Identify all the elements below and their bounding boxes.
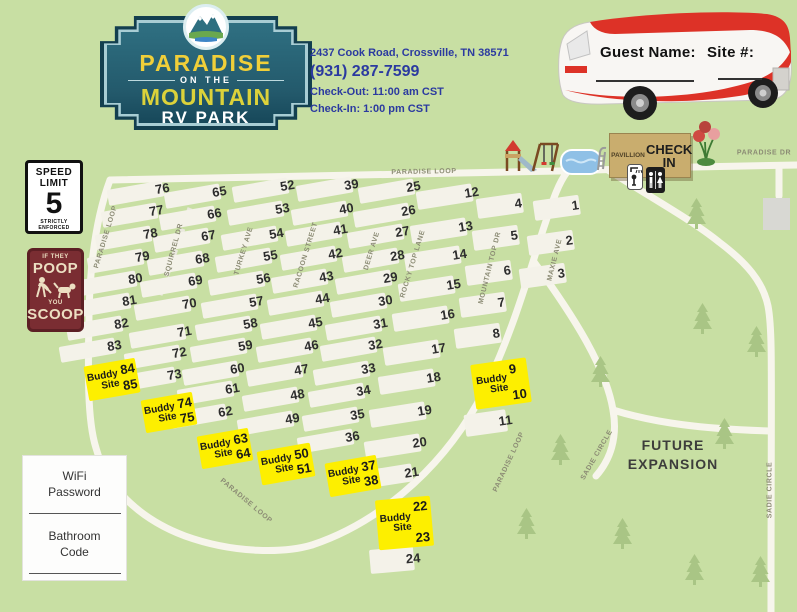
site-number: 68 <box>194 250 211 267</box>
site-number: 45 <box>307 314 324 331</box>
site-number: 81 <box>121 292 138 309</box>
site-number: 15 <box>445 276 462 293</box>
site-19: 19 <box>369 399 445 428</box>
site-number: 14 <box>451 246 468 263</box>
future-expansion-label: FUTURE EXPANSION <box>612 436 734 474</box>
site-number: 35 <box>349 406 366 423</box>
site-number: 31 <box>372 315 389 332</box>
buddy-site-label: BuddySite <box>86 368 120 393</box>
buddy-site-37-38: BuddySite3738 <box>324 455 381 498</box>
site-number: 56 <box>255 270 272 287</box>
site-number: 55 <box>262 247 279 264</box>
site-number: 30 <box>377 292 394 309</box>
buddy-site-label: BuddySite <box>379 512 412 535</box>
site-number: 61 <box>224 380 241 397</box>
road-label-sadie-circle: SADIE CIRCLE <box>767 462 774 519</box>
site-number: 77 <box>148 202 165 219</box>
site-8: 8 <box>454 320 520 349</box>
site-1: 1 <box>533 192 599 221</box>
site-number: 53 <box>274 200 291 217</box>
guest-name-blank-line <box>596 80 694 82</box>
rv-site-number-label: Site #: <box>707 44 754 61</box>
road-label-sadie-circle: SADIE CIRCLE <box>580 429 614 482</box>
site-number: 79 <box>134 248 151 265</box>
road-label-paradise-loop: PARADISE LOOP <box>492 431 526 493</box>
buddy-site-label: BuddySite <box>260 453 294 478</box>
road-label-paradise-loop: PARADISE LOOP <box>391 168 456 176</box>
rv-park-map: 1234567811121314151617181920212425262728… <box>0 0 797 612</box>
logo-line-paradise: PARADISE <box>100 50 312 77</box>
site-number: 34 <box>355 382 372 399</box>
site-number: 52 <box>279 177 296 194</box>
buddy-site-74-75: BuddySite7475 <box>141 392 198 434</box>
flowers-icon <box>690 118 722 166</box>
site-number: 44 <box>314 290 331 307</box>
site-number: 65 <box>211 183 228 200</box>
site-7: 7 <box>459 289 525 318</box>
logo-line-rvpark: RV PARK <box>100 108 312 128</box>
site-number: 32 <box>367 336 384 353</box>
pool-icon <box>560 142 608 176</box>
site-18: 18 <box>378 366 454 395</box>
site-number: 73 <box>166 366 183 383</box>
wifi-password-blank-line <box>29 513 121 514</box>
site-number: 71 <box>176 323 193 340</box>
site-number: 18 <box>425 369 442 386</box>
pet-waste-sign: IF THEY POOP YOU SCOOP <box>27 248 84 332</box>
site-number: 72 <box>171 344 188 361</box>
site-number: 27 <box>394 223 411 240</box>
site-number: 69 <box>187 272 204 289</box>
logo-line-mountain: MOUNTAIN <box>100 84 312 111</box>
future-word: FUTURE <box>612 436 734 455</box>
site-number: 59 <box>237 337 254 354</box>
site-11: 11 <box>463 407 525 437</box>
site-number: 40 <box>338 200 355 217</box>
pavillion-label: PAVILLION <box>610 152 646 159</box>
buddy-site-numbers: 7475 <box>176 394 195 425</box>
checkout-text: Check-Out: 11:00 am CST <box>310 86 509 98</box>
address-text: 2437 Cook Road, Crossville, TN 38571 <box>310 47 509 59</box>
site-number: 78 <box>142 225 159 242</box>
site-number: 19 <box>416 402 433 419</box>
shower-icon <box>627 164 643 190</box>
rv-guest-name-label: Guest Name: <box>600 44 696 61</box>
site-16: 16 <box>392 303 468 332</box>
site-number: 47 <box>293 361 310 378</box>
park-logo-sign: PARADISE ON THE MOUNTAIN RV PARK <box>100 4 312 130</box>
speed-word: SPEED <box>36 167 72 178</box>
buddy-site-63-64: BuddySite6364 <box>197 428 254 470</box>
site-number: 66 <box>206 205 223 222</box>
buddy-site-numbers: 3738 <box>360 457 379 489</box>
buddy-site-22-23: BuddySite2223 <box>375 496 434 551</box>
site-number: 12 <box>463 184 480 201</box>
site-number: 57 <box>248 293 265 310</box>
site-number: 58 <box>242 315 259 332</box>
site-number: 25 <box>405 178 422 195</box>
road-label-paradise-dr: PARADISE DR <box>737 150 791 157</box>
speed-number: 5 <box>46 189 63 219</box>
buddy-site-numbers: 6364 <box>232 430 251 461</box>
checkin-text: Check-In: 1:00 pm CST <box>310 103 509 115</box>
buddy-site-label: BuddySite <box>476 373 510 397</box>
phone-text: (931) 287-7599 <box>310 63 509 81</box>
site-number: 83 <box>106 337 123 354</box>
site-number: 39 <box>343 176 360 193</box>
site-number: 43 <box>318 268 335 285</box>
site-number: 41 <box>332 221 349 238</box>
site-number: 33 <box>360 360 377 377</box>
rv-illustration <box>545 0 795 130</box>
scoop-text: SCOOP <box>27 307 84 322</box>
speed-limit-sign: SPEED LIMIT 5 STRICTLY ENFORCED <box>25 160 83 234</box>
buddy-site-numbers: 910 <box>508 360 528 403</box>
site-number: 60 <box>229 360 246 377</box>
buddy-site-numbers: 2223 <box>412 498 430 545</box>
site-number: 24 <box>405 550 421 566</box>
site-number-blank-line <box>718 78 762 80</box>
contact-info: 2437 Cook Road, Crossville, TN 38571 (93… <box>310 47 509 120</box>
site-number: 36 <box>344 428 361 445</box>
restroom-icon <box>646 167 665 193</box>
buddy-site-label: BuddySite <box>199 437 233 462</box>
playground-icon <box>503 136 559 174</box>
site-number: 42 <box>327 245 344 262</box>
site-number: 62 <box>217 403 234 420</box>
site-number: 67 <box>200 227 217 244</box>
buddy-site-label: BuddySite <box>143 401 177 426</box>
buddy-site-9-10: BuddySite910 <box>470 357 532 409</box>
bathroom-code-blank-line <box>29 573 121 574</box>
site-number: 49 <box>284 410 301 427</box>
site-number: 16 <box>439 306 456 323</box>
poop-text: POOP <box>33 261 78 276</box>
bathroom-code-label: Bathroom Code <box>35 528 115 560</box>
mountain-emblem-icon <box>183 4 229 50</box>
wifi-password-label: WiFi Password <box>39 468 111 500</box>
site-number: 29 <box>382 269 399 286</box>
buddy-site-numbers: 8485 <box>119 360 139 393</box>
site-number: 26 <box>400 202 417 219</box>
site-number: 54 <box>268 225 285 242</box>
site-number: 82 <box>113 315 130 332</box>
enforced-word: ENFORCED <box>38 225 69 231</box>
site-number: 76 <box>154 180 171 197</box>
buddy-site-84-85: BuddySite8485 <box>83 358 140 401</box>
buddy-site-label: BuddySite <box>327 465 361 490</box>
site-number: 17 <box>430 340 447 357</box>
site-number: 80 <box>127 270 144 287</box>
buddy-site-numbers: 5051 <box>293 445 312 477</box>
site-number: 11 <box>498 412 514 429</box>
buddy-site-50-51: BuddySite5051 <box>256 443 315 486</box>
check-in-label: CHECK IN <box>646 143 692 169</box>
site-number: 70 <box>181 295 198 312</box>
dog-scoop-icon <box>34 276 78 300</box>
site-number: 13 <box>457 218 474 235</box>
expansion-word: EXPANSION <box>612 455 734 474</box>
site-number: 46 <box>303 337 320 354</box>
codes-box: WiFi Password Bathroom Code <box>22 455 127 581</box>
site-number: 20 <box>411 434 428 451</box>
site-number: 28 <box>389 247 406 264</box>
site-number: 21 <box>403 464 420 481</box>
site-number: 48 <box>289 386 306 403</box>
